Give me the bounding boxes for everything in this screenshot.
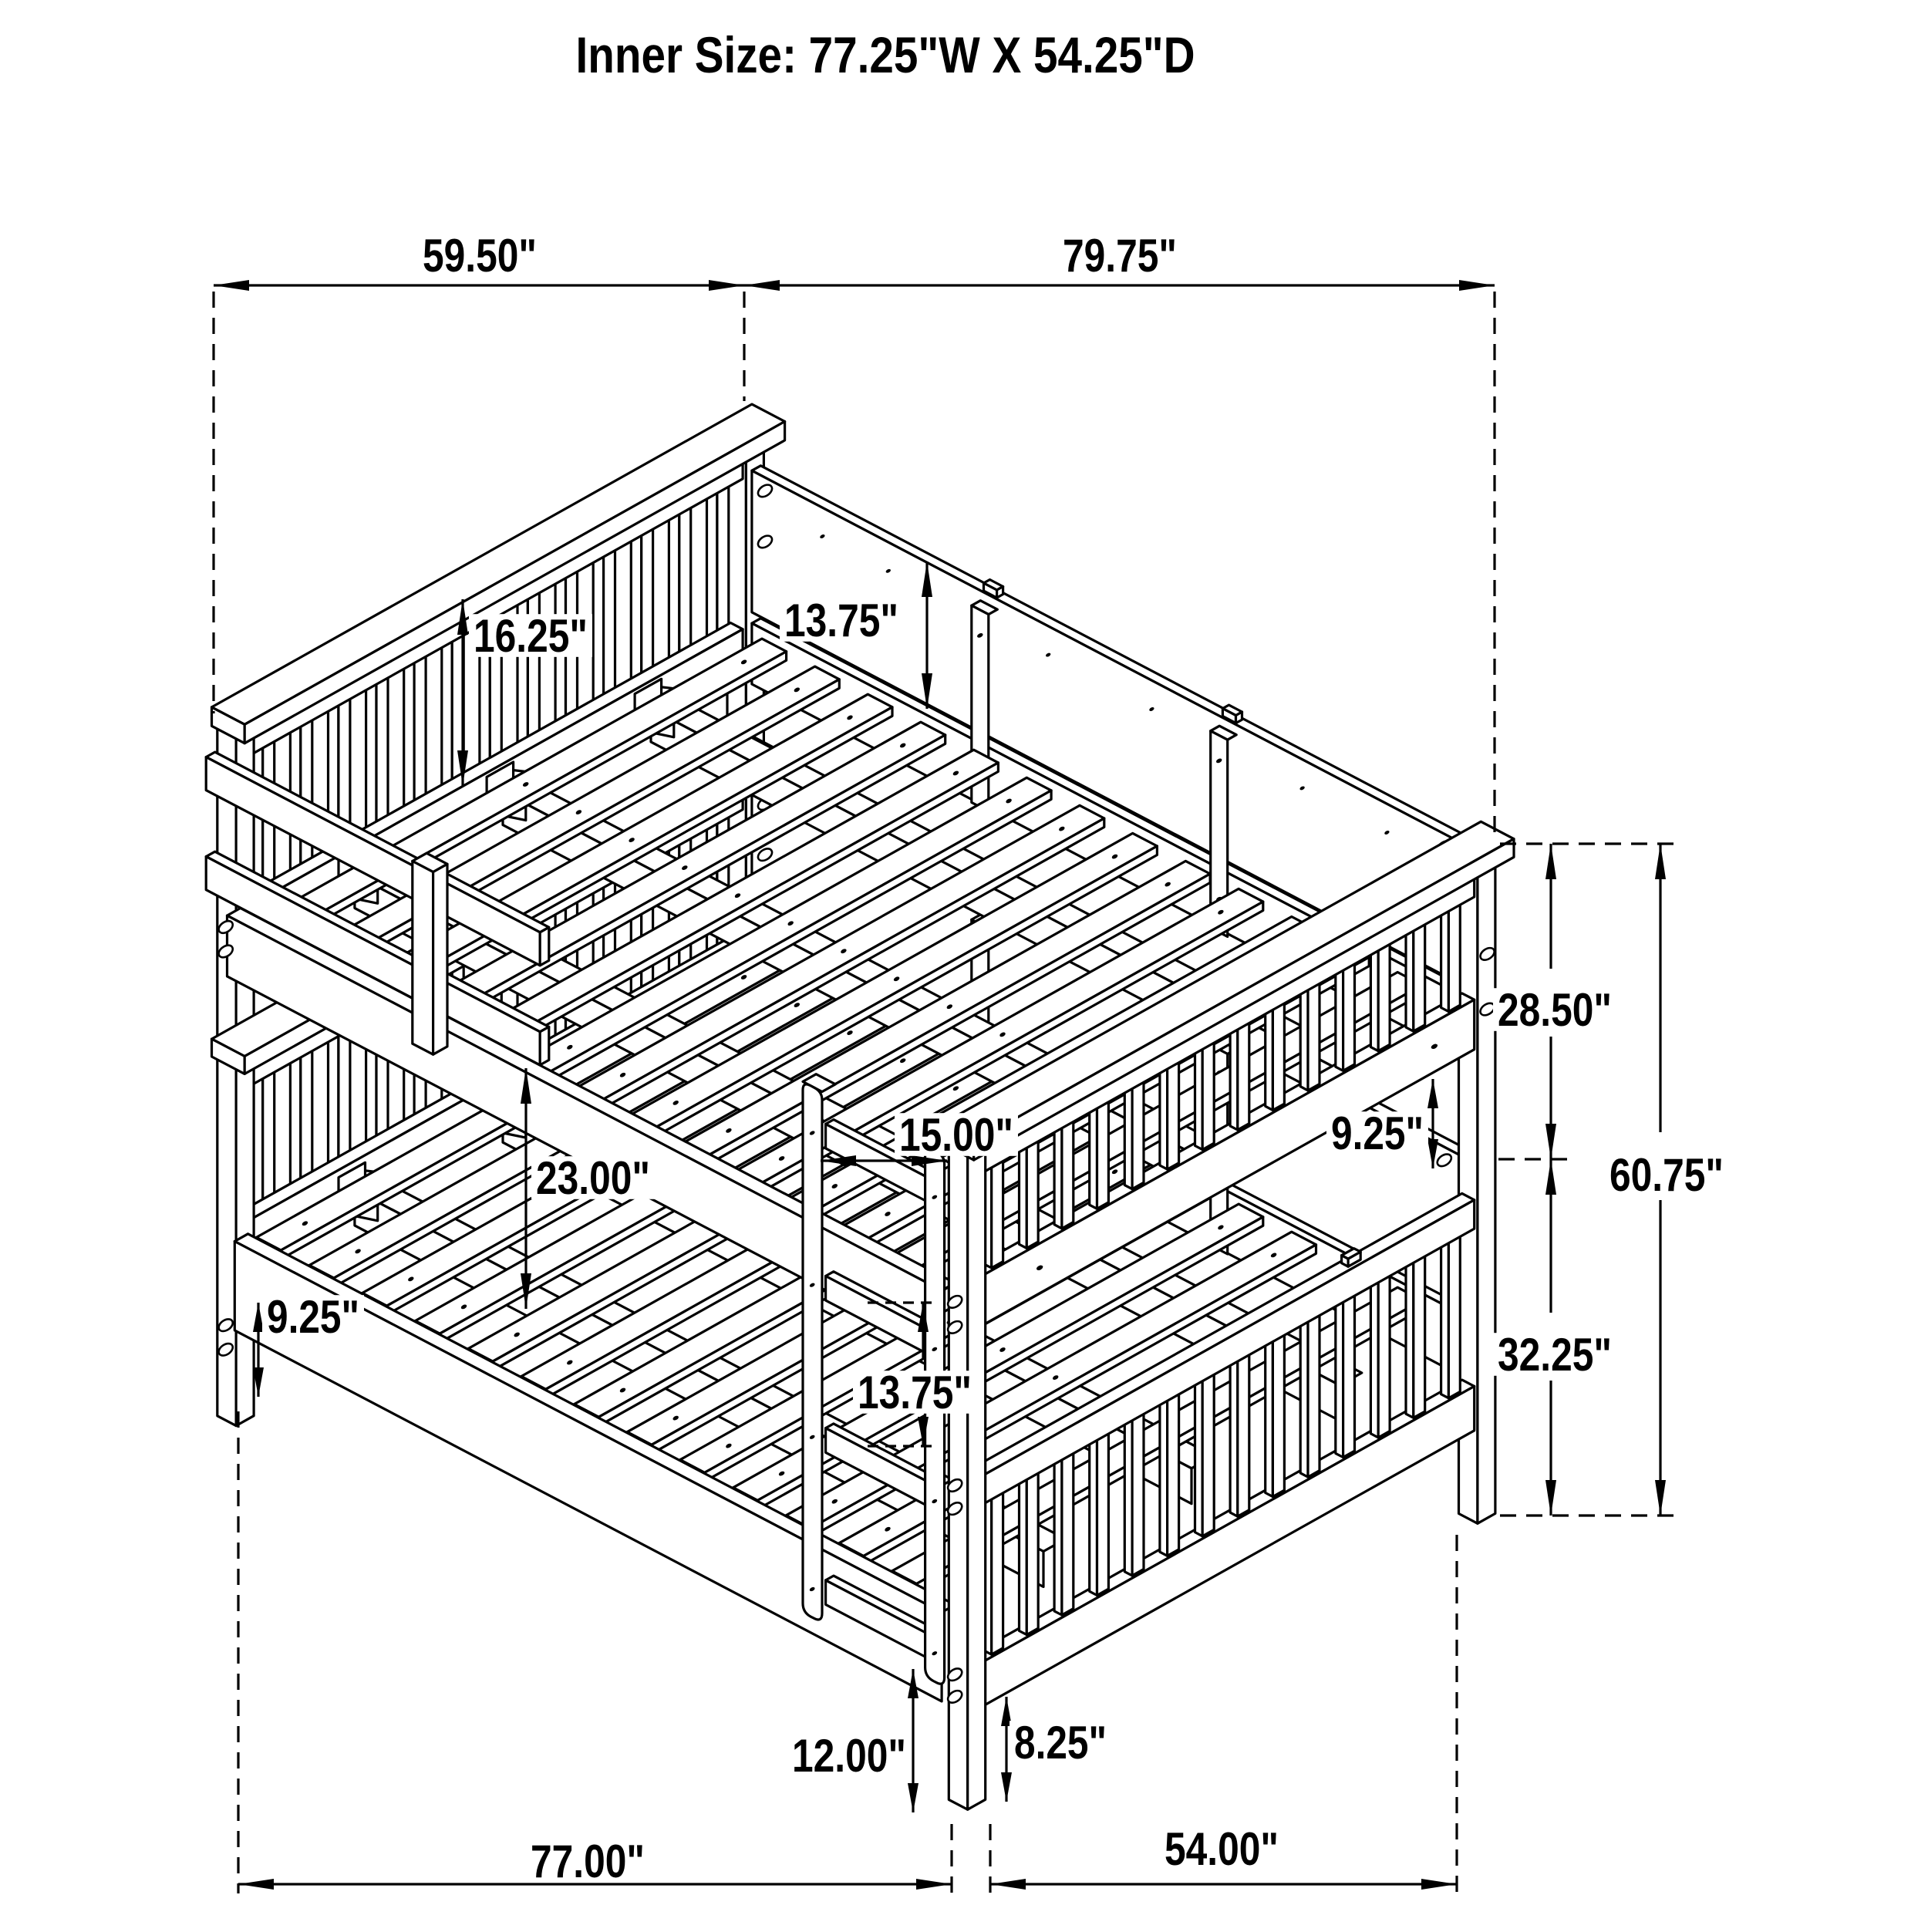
svg-text:32.25": 32.25" (1498, 1329, 1612, 1381)
svg-text:8.25": 8.25" (1014, 1717, 1107, 1768)
svg-text:16.25": 16.25" (474, 610, 588, 662)
svg-text:9.25": 9.25" (267, 1291, 359, 1343)
svg-text:28.50": 28.50" (1498, 984, 1612, 1036)
svg-text:9.25": 9.25" (1331, 1108, 1424, 1159)
svg-text:Inner Size: 77.25"W X 54.25"D: Inner Size: 77.25"W X 54.25"D (576, 26, 1195, 83)
svg-text:13.75": 13.75" (858, 1367, 972, 1418)
svg-text:13.75": 13.75" (784, 595, 898, 646)
svg-text:54.00": 54.00" (1165, 1823, 1279, 1875)
svg-text:15.00": 15.00" (899, 1109, 1013, 1161)
svg-text:23.00": 23.00" (536, 1152, 650, 1204)
svg-text:77.00": 77.00" (531, 1836, 645, 1887)
svg-text:79.75": 79.75" (1063, 230, 1177, 282)
svg-text:60.75": 60.75" (1609, 1149, 1724, 1201)
svg-text:59.50": 59.50" (423, 230, 537, 282)
svg-text:12.00": 12.00" (792, 1730, 906, 1782)
